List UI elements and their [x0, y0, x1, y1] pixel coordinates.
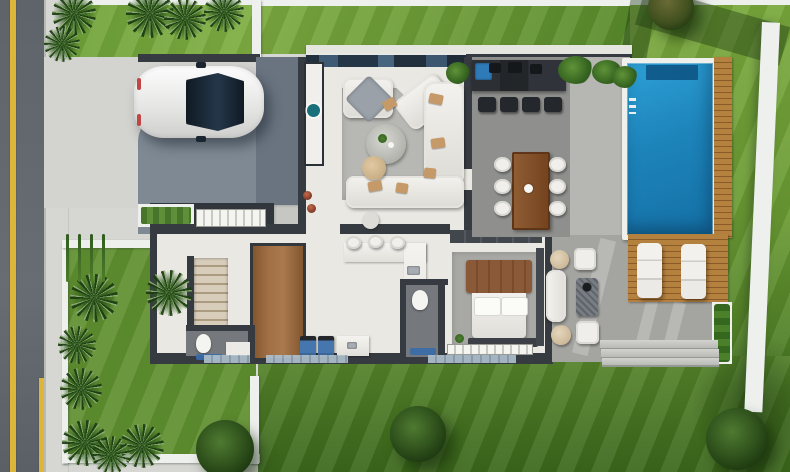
table-plant — [378, 134, 387, 143]
powder-mat — [410, 348, 436, 355]
wall — [340, 224, 450, 234]
plant — [446, 62, 470, 84]
driveway-top-wall — [138, 54, 260, 62]
round-tree — [706, 408, 768, 470]
kitchen-stool — [390, 236, 405, 249]
pillow — [501, 297, 528, 316]
kitchen-sink — [407, 266, 420, 275]
plant — [612, 66, 638, 88]
dining-chair — [494, 157, 511, 172]
car-taillight — [137, 114, 141, 126]
toilet — [196, 334, 211, 353]
bar-stool — [478, 97, 496, 112]
bed-headboard — [466, 260, 532, 293]
pool-ladder — [629, 98, 636, 114]
round-tree — [196, 420, 254, 472]
sofa-cushion — [395, 182, 408, 194]
street-center-line — [10, 0, 16, 472]
pool-steps — [646, 65, 698, 80]
kitchen-stool — [368, 235, 383, 248]
garden-wall-top — [62, 240, 156, 248]
dining-chair — [549, 179, 566, 194]
car-mirror — [196, 62, 206, 68]
dining-chair — [494, 201, 511, 216]
scene — [0, 0, 790, 472]
car-taillight — [137, 78, 141, 90]
dining-chair — [549, 201, 566, 216]
palm-tree — [92, 436, 130, 472]
palm-tree — [58, 326, 96, 364]
powder-wall — [438, 284, 445, 363]
powder-toilet — [412, 290, 428, 310]
bar-stool — [500, 97, 518, 112]
lounge-bench — [546, 270, 566, 322]
pouf — [574, 248, 596, 270]
counter-appliance — [489, 63, 501, 73]
palm-tree — [164, 0, 206, 40]
bar-stool — [544, 97, 562, 112]
tall-grass — [78, 234, 81, 282]
dining-chair — [494, 179, 511, 194]
fire-table — [576, 278, 598, 316]
bedroom-window — [447, 344, 533, 355]
pouf — [576, 321, 599, 344]
washing-machine — [300, 336, 316, 357]
window-band — [428, 355, 516, 363]
palm-tree — [146, 270, 192, 316]
table-cup — [388, 142, 394, 148]
plant — [558, 56, 594, 84]
wood-deck-side — [714, 57, 732, 238]
front-window-band — [306, 53, 466, 67]
dining-chair — [549, 157, 566, 172]
pillow — [474, 297, 501, 316]
staircase — [194, 258, 228, 332]
dryer — [318, 336, 334, 357]
sofa-cushion — [424, 167, 437, 178]
side-table — [362, 212, 379, 229]
ottoman — [550, 250, 569, 269]
flower-pot — [303, 191, 312, 200]
street — [0, 0, 44, 472]
tall-grass — [66, 234, 69, 282]
counter-appliance — [508, 62, 522, 73]
sun-lounger — [681, 244, 706, 299]
ottoman — [551, 325, 571, 345]
car-windshield — [186, 73, 244, 131]
garden-step — [602, 358, 719, 367]
island-sink — [347, 342, 357, 349]
bathroom-vanity — [226, 342, 250, 356]
tall-grass — [102, 234, 105, 282]
table-plate — [524, 184, 533, 193]
palm-tree — [44, 26, 80, 62]
tall-grass — [90, 234, 93, 282]
sofa-cushion — [430, 137, 445, 149]
palm-tree — [60, 368, 102, 410]
counter-appliance — [530, 64, 542, 74]
swimming-pool — [627, 63, 713, 235]
bar-stool — [522, 97, 540, 112]
window-band — [266, 355, 348, 363]
car-mirror — [196, 136, 206, 142]
wood-hallway — [253, 246, 303, 358]
entry-glazing — [196, 209, 266, 227]
bedroom-wardrobe — [536, 248, 544, 346]
wall — [298, 57, 306, 231]
window-band — [204, 355, 250, 363]
bedroom-plant — [455, 334, 464, 343]
side-pouf — [362, 156, 386, 180]
sun-lounger — [637, 243, 662, 298]
round-tree — [390, 406, 446, 462]
flower-pot — [307, 204, 316, 213]
kitchen-stool — [346, 236, 361, 249]
lawn-divider-wall — [252, 0, 261, 59]
accent-stool — [307, 104, 320, 117]
